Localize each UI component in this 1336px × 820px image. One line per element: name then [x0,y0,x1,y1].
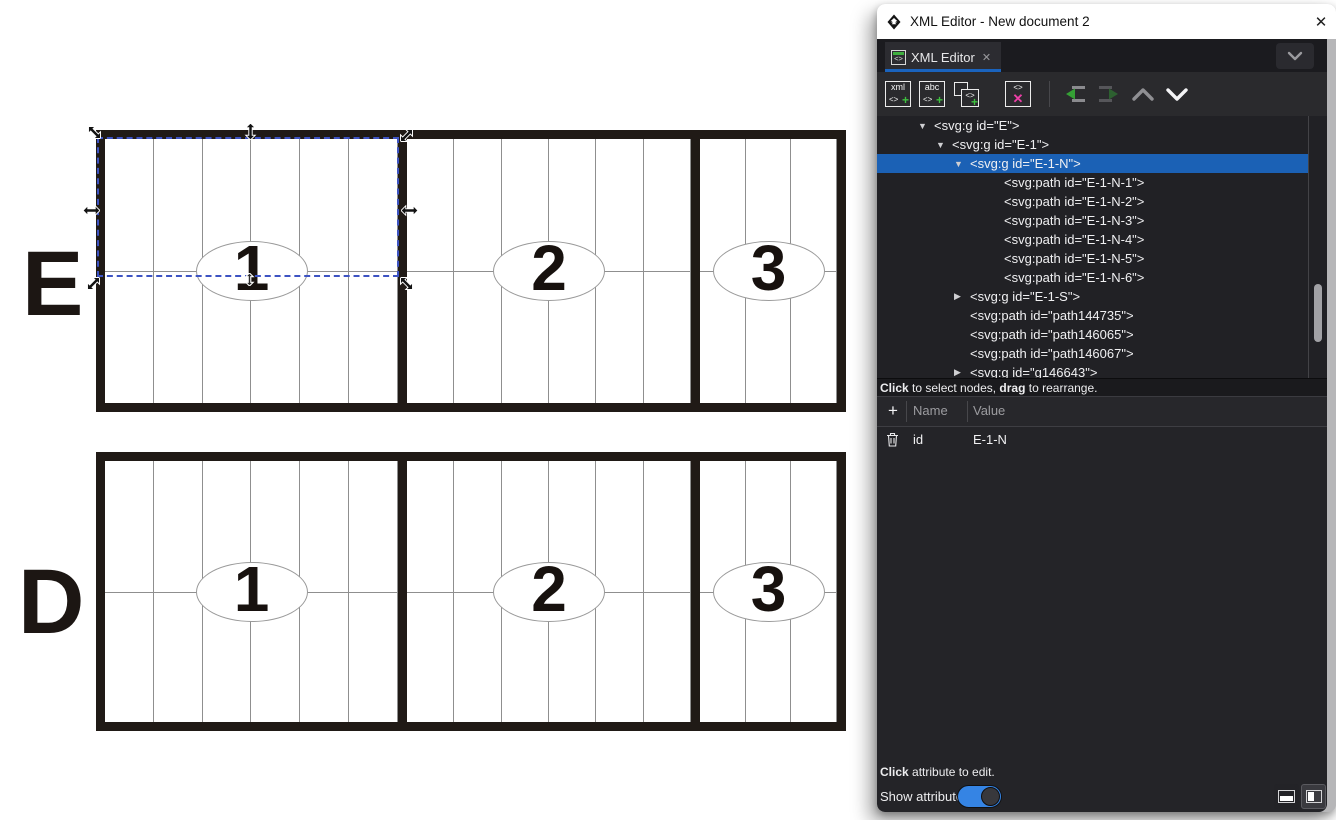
tree-node[interactable]: <svg:path id="E-1-N-5"> [877,249,1308,268]
section-number: 3 [751,557,787,627]
tree-node[interactable]: <svg:path id="E-1-N-4"> [877,230,1308,249]
attribute-name[interactable]: id [913,432,923,447]
duplicate-node-button[interactable]: <>+ [949,77,983,111]
unindent-node-icon [1063,83,1087,105]
chevron-up-icon [1131,88,1155,101]
oval-E-2[interactable]: 2 [493,241,605,301]
tree-node-label: <svg:g id="E-1"> [952,137,1049,152]
horizontal-split-icon [1278,790,1295,803]
tree-node-label: <svg:path id="E-1-N-1"> [1004,175,1144,190]
scale-handle-mid-left[interactable] [83,202,100,219]
section-D-1[interactable]: 1 [105,461,398,722]
row-D-rect[interactable]: 1 2 3 [96,452,846,731]
oval-D-2[interactable]: 2 [493,562,605,622]
tree-node[interactable]: ▼<svg:g id="E-1"> [877,135,1308,154]
edit-hint: Click attribute to edit. [877,763,1327,782]
tree-node-label: <svg:g id="E-1-S"> [970,289,1080,304]
add-attribute-button[interactable]: + [883,401,903,421]
tree-node[interactable]: ▶<svg:g id="E-1-S"> [877,287,1308,306]
value-column-header: Value [973,403,1005,418]
xml-tree: ▼<svg:g id="E"> ▼<svg:g id="E-1"> ▼<svg:… [877,116,1327,378]
bottom-bar: Show attributes [877,782,1327,812]
section-number: 1 [234,557,270,627]
name-column-header: Name [913,403,948,418]
section-D-2[interactable]: 2 [398,461,691,722]
scale-handle-bottom-center[interactable] [243,273,256,286]
chevron-down-icon [1287,51,1303,61]
tree-node[interactable]: ▶<svg:g id="g146643"> [877,363,1308,378]
xml-editor-dialog: <> XML Editor ✕ xml <> + abc [877,4,1336,812]
attributes-empty-area [877,453,1327,763]
oval-E-3[interactable]: 3 [713,241,825,301]
indent-node-icon [1097,83,1121,105]
move-node-up-button[interactable] [1126,77,1160,111]
label-E[interactable]: E [22,238,81,330]
window-edge-strip [1327,39,1336,812]
tab-label: XML Editor [911,50,975,65]
section-E-2[interactable]: 2 [398,139,691,403]
new-text-node-icon: abc <> + [919,81,945,107]
toggle-knob [981,787,1000,806]
section-D-3[interactable]: 3 [691,461,837,722]
attribute-value[interactable]: E-1-N [973,432,1007,447]
oval-D-1[interactable]: 1 [196,562,308,622]
xml-toolbar: xml <> + abc <> + <>+ [877,72,1327,116]
layout-vertical-button[interactable] [1301,784,1326,809]
expander-icon[interactable]: ▶ [954,291,970,302]
inkscape-icon [886,14,902,30]
tree-node-label: <svg:path id="E-1-N-3"> [1004,213,1144,228]
tree-node[interactable]: <svg:path id="E-1-N-3"> [877,211,1308,230]
tree-node-label: <svg:path id="E-1-N-2"> [1004,194,1144,209]
unindent-node-button[interactable] [1058,77,1092,111]
tree-node-label: <svg:path id="E-1-N-5"> [1004,251,1144,266]
toolbar-separator [1049,81,1050,107]
delete-node-icon: <> ✕ [1005,81,1031,107]
expander-icon[interactable]: ▼ [918,121,934,131]
tree-hint: Click to select nodes, drag to rearrange… [877,378,1327,396]
section-number: 2 [531,236,567,306]
expander-icon[interactable]: ▼ [936,140,952,150]
tree-node[interactable]: <svg:path id="path146065"> [877,325,1308,344]
tree-node-label: <svg:g id="E"> [934,118,1019,133]
xml-editor-icon: <> [891,50,906,65]
section-number: 3 [751,236,787,306]
scrollbar-thumb[interactable] [1314,284,1322,342]
attribute-row[interactable]: id E-1-N [877,427,1327,453]
new-element-node-icon: xml <> + [885,81,911,107]
new-text-node-button[interactable]: abc <> + [915,77,949,111]
attributes-header: + Name Value [877,396,1327,427]
tree-node[interactable]: <svg:path id="path144735"> [877,306,1308,325]
oval-D-3[interactable]: 3 [713,562,825,622]
scrollbar-separator [1308,116,1309,378]
scale-handle-top-left[interactable] [82,120,106,144]
duplicate-node-icon: <>+ [951,79,981,109]
column-separator [906,401,907,422]
tree-node-label: <svg:path id="E-1-N-6"> [1004,270,1144,285]
tab-xml-editor[interactable]: <> XML Editor ✕ [885,42,1001,72]
tree-node-selected[interactable]: ▼<svg:g id="E-1-N"> [877,154,1308,173]
tab-bar: <> XML Editor ✕ [877,39,1327,72]
show-attributes-toggle[interactable] [957,785,1002,808]
tree-node-label: <svg:g id="E-1-N"> [970,156,1081,171]
tree-node-label: <svg:g id="g146643"> [970,365,1097,378]
close-window-icon[interactable]: ✕ [1306,13,1336,31]
tree-node-label: <svg:path id="E-1-N-4"> [1004,232,1144,247]
tree-node-label: <svg:path id="path144735"> [970,308,1134,323]
column-separator [967,401,968,422]
scale-handle-mid-right[interactable] [401,202,418,219]
expander-icon[interactable]: ▼ [954,159,970,169]
layout-horizontal-button[interactable] [1274,784,1299,809]
delete-attribute-icon[interactable] [886,432,899,447]
expander-icon[interactable]: ▶ [954,367,970,378]
selection-rect [97,137,399,277]
tree-node-label: <svg:path id="path146067"> [970,346,1134,361]
label-D[interactable]: D [18,556,82,648]
active-tab-underline [885,69,1001,72]
section-number: 2 [531,557,567,627]
tree-node[interactable]: <svg:path id="path146067"> [877,344,1308,363]
tree-node-label: <svg:path id="path146065"> [970,327,1134,342]
section-E-3[interactable]: 3 [691,139,837,403]
chevron-down-icon [1165,88,1189,101]
new-element-node-button[interactable]: xml <> + [881,77,915,111]
tree-node[interactable]: <svg:path id="E-1-N-2"> [877,192,1308,211]
move-node-down-button[interactable] [1160,77,1194,111]
tab-overflow-button[interactable] [1276,43,1314,69]
vertical-split-icon [1306,790,1322,803]
dialog-titlebar[interactable]: XML Editor - New document 2 ✕ [877,4,1336,39]
tree-node[interactable]: ▼<svg:g id="E"> [877,116,1308,135]
tab-close-icon[interactable]: ✕ [982,51,991,64]
scale-handle-top-center[interactable] [242,123,259,140]
delete-node-button[interactable]: <> ✕ [1001,77,1035,111]
indent-node-button[interactable] [1092,77,1126,111]
window-title: XML Editor - New document 2 [910,14,1306,29]
tree-node[interactable]: <svg:path id="E-1-N-1"> [877,173,1308,192]
tree-node[interactable]: <svg:path id="E-1-N-6"> [877,268,1308,287]
